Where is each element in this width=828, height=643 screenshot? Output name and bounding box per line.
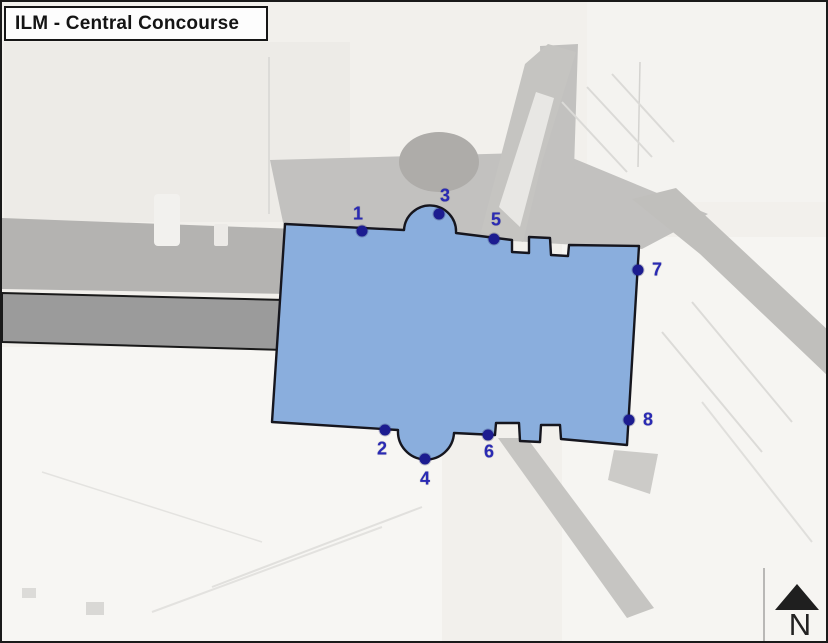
north-arrow: N (772, 582, 828, 643)
gate-dot-icon[interactable] (357, 226, 368, 237)
map-title: ILM - Central Concourse (15, 13, 239, 35)
map-frame: 12345678 ILM - Central Concourse N (0, 0, 828, 643)
gate-dot-icon[interactable] (380, 425, 391, 436)
gate-number: 4 (420, 469, 430, 490)
gate-dot-icon[interactable] (483, 430, 494, 441)
gate-number: 6 (484, 442, 494, 463)
north-label: N (789, 609, 811, 640)
gate-number: 1 (353, 204, 363, 225)
gate-number: 7 (652, 260, 662, 281)
gate-dot-icon[interactable] (420, 454, 431, 465)
gate-dot-icon[interactable] (489, 234, 500, 245)
gate-number: 2 (377, 439, 387, 460)
map-title-box: ILM - Central Concourse (4, 6, 268, 41)
airport-map-svg (2, 2, 828, 643)
gate-dot-icon[interactable] (633, 265, 644, 276)
gate-dot-icon[interactable] (434, 209, 445, 220)
gate-number: 3 (440, 186, 450, 207)
gate-dot-icon[interactable] (624, 415, 635, 426)
gate-number: 8 (643, 410, 653, 431)
gate-number: 5 (491, 210, 501, 231)
